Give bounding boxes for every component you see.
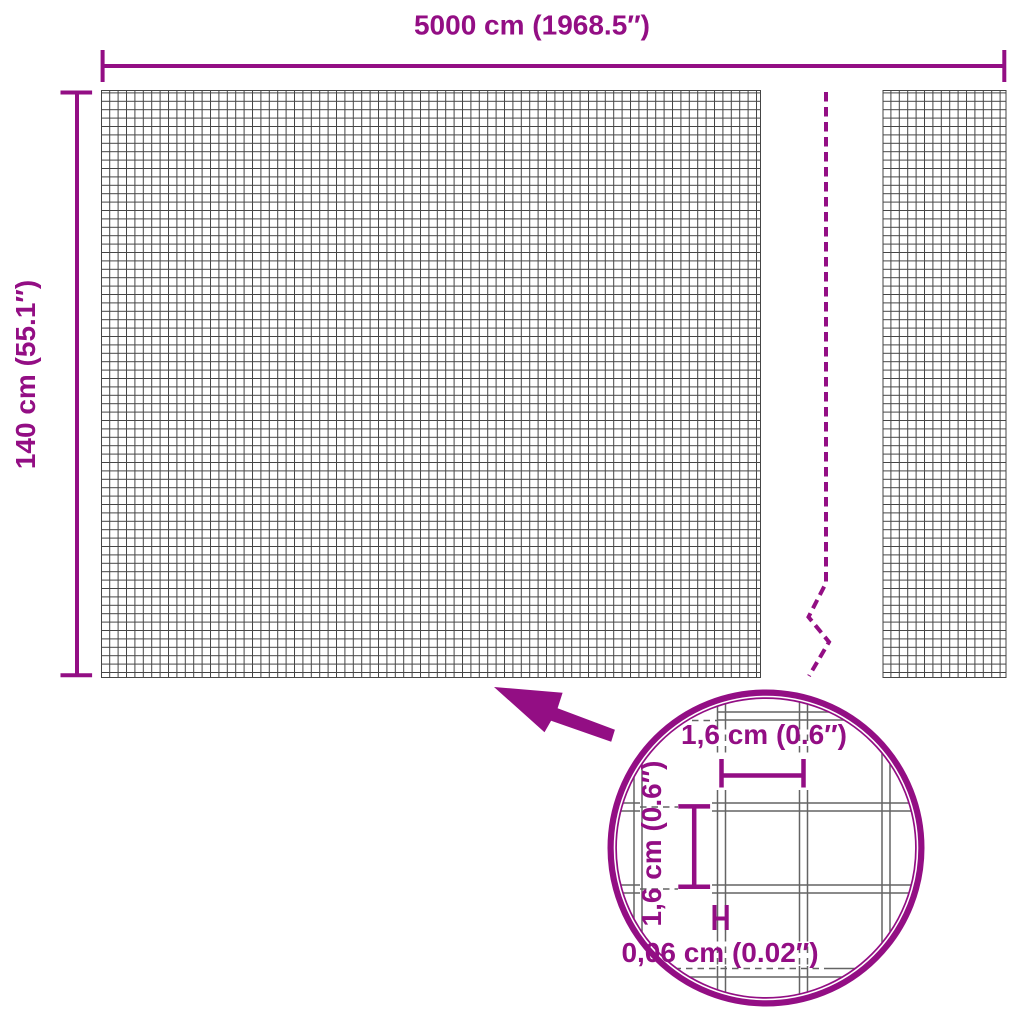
svg-text:1,6 cm (0.6″): 1,6 cm (0.6″) xyxy=(681,719,847,750)
svg-text:140 cm (55.1″): 140 cm (55.1″) xyxy=(10,280,41,469)
svg-text:1,6 cm (0.6″): 1,6 cm (0.6″) xyxy=(636,761,667,927)
svg-text:5000 cm (1968.5″): 5000 cm (1968.5″) xyxy=(414,10,650,41)
